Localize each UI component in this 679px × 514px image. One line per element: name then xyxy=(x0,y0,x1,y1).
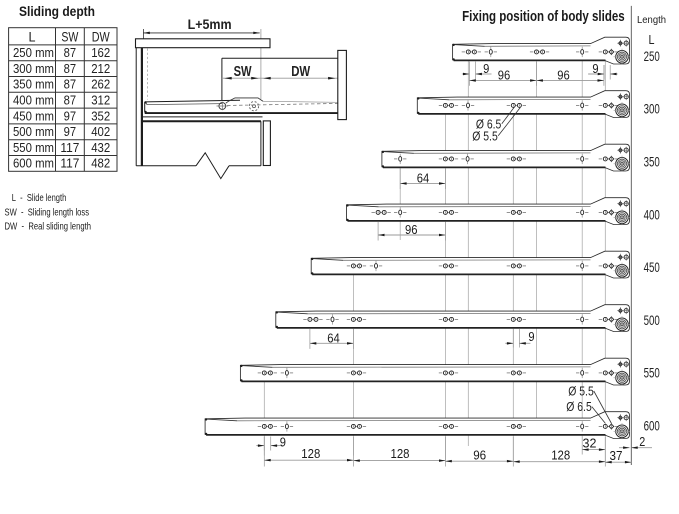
svg-text:250: 250 xyxy=(644,49,660,64)
svg-text:162: 162 xyxy=(91,45,110,60)
svg-text:212: 212 xyxy=(91,61,110,76)
svg-text:500: 500 xyxy=(644,313,660,328)
svg-text:450: 450 xyxy=(644,260,660,275)
svg-text:64: 64 xyxy=(417,170,430,185)
svg-text:96: 96 xyxy=(473,448,486,463)
svg-text:400: 400 xyxy=(644,207,660,222)
svg-text:262: 262 xyxy=(91,77,110,92)
svg-text:87: 87 xyxy=(64,93,77,108)
svg-text:300: 300 xyxy=(644,102,660,117)
svg-text:350 mm: 350 mm xyxy=(13,77,54,92)
svg-text:Ø 5.5: Ø 5.5 xyxy=(568,383,594,398)
svg-text:600 mm: 600 mm xyxy=(13,156,54,171)
svg-text:L - Slide length: L - Slide length xyxy=(12,192,67,204)
svg-text:L+5mm: L+5mm xyxy=(188,17,232,32)
svg-text:32: 32 xyxy=(583,436,597,450)
svg-text:DW: DW xyxy=(92,30,110,45)
svg-text:117: 117 xyxy=(60,156,79,171)
svg-text:128: 128 xyxy=(551,448,570,463)
svg-text:352: 352 xyxy=(91,108,110,123)
svg-text:250 mm: 250 mm xyxy=(13,45,54,60)
svg-text:Ø 5.5: Ø 5.5 xyxy=(472,129,498,144)
svg-text:9: 9 xyxy=(280,435,286,450)
svg-text:SW - Sliding length loss: SW - Sliding length loss xyxy=(5,207,90,219)
svg-text:DW - Real sliding length: DW - Real sliding length xyxy=(5,221,92,233)
svg-text:64: 64 xyxy=(327,330,340,345)
svg-text:9: 9 xyxy=(528,329,534,344)
svg-text:87: 87 xyxy=(64,45,77,60)
svg-text:9: 9 xyxy=(483,61,489,76)
svg-text:402: 402 xyxy=(91,124,110,139)
svg-text:97: 97 xyxy=(64,124,77,139)
svg-text:96: 96 xyxy=(498,67,511,82)
svg-text:450 mm: 450 mm xyxy=(13,108,54,123)
svg-text:550 mm: 550 mm xyxy=(13,140,54,155)
svg-text:312: 312 xyxy=(91,93,110,108)
svg-text:550: 550 xyxy=(644,366,660,381)
svg-text:87: 87 xyxy=(64,77,77,92)
svg-text:350: 350 xyxy=(644,155,660,170)
svg-text:96: 96 xyxy=(557,67,570,82)
svg-text:Fixing position of body slides: Fixing position of body slides xyxy=(462,8,625,25)
svg-text:L: L xyxy=(29,30,36,45)
svg-text:DW: DW xyxy=(291,64,310,80)
svg-text:400 mm: 400 mm xyxy=(13,93,54,108)
svg-text:500 mm: 500 mm xyxy=(13,124,54,139)
svg-text:300 mm: 300 mm xyxy=(13,61,54,76)
svg-text:87: 87 xyxy=(64,61,77,76)
svg-text:432: 432 xyxy=(91,140,110,155)
svg-text:128: 128 xyxy=(301,446,320,461)
svg-text:Length: Length xyxy=(637,14,666,26)
svg-text:SW: SW xyxy=(234,64,252,80)
svg-text:Ø 6.5: Ø 6.5 xyxy=(566,399,592,414)
svg-text:600: 600 xyxy=(644,419,660,434)
svg-text:482: 482 xyxy=(91,156,110,171)
svg-text:Sliding depth: Sliding depth xyxy=(19,3,95,19)
svg-text:SW: SW xyxy=(61,30,78,45)
svg-text:97: 97 xyxy=(64,108,77,123)
svg-text:9: 9 xyxy=(592,61,598,76)
svg-text:117: 117 xyxy=(60,140,79,155)
svg-text:128: 128 xyxy=(391,446,410,461)
svg-text:L: L xyxy=(649,32,655,47)
svg-text:2: 2 xyxy=(639,435,645,449)
svg-text:96: 96 xyxy=(405,222,418,237)
svg-text:37: 37 xyxy=(610,448,623,463)
